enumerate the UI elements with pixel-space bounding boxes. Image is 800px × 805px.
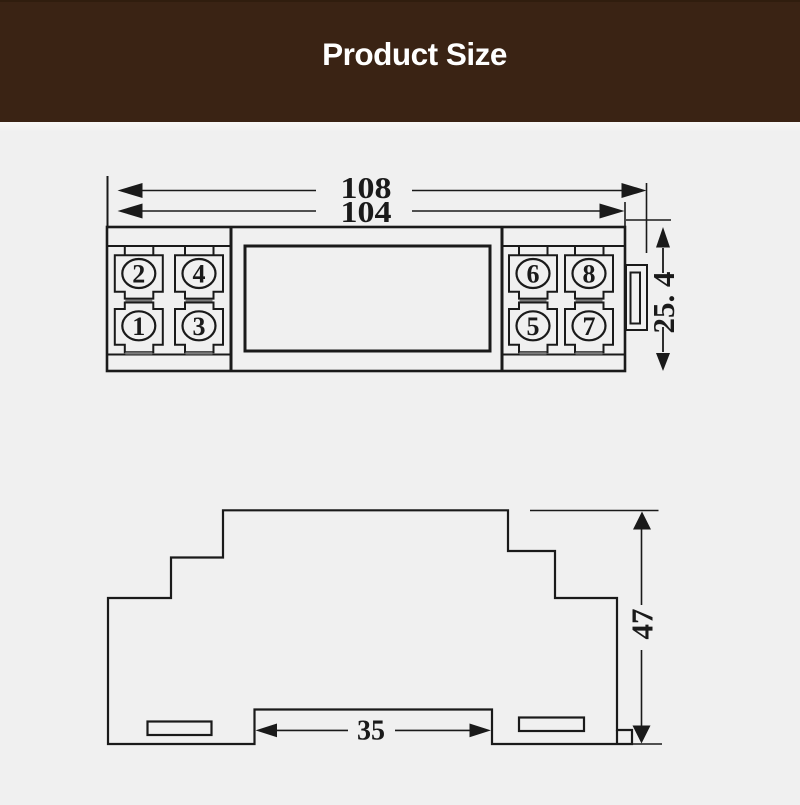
svg-text:1: 1 <box>132 312 145 341</box>
svg-text:4: 4 <box>193 260 206 289</box>
svg-text:47: 47 <box>625 609 660 640</box>
svg-text:7: 7 <box>583 312 596 341</box>
svg-text:2: 2 <box>132 260 145 289</box>
svg-text:3: 3 <box>193 312 206 341</box>
svg-text:25. 4: 25. 4 <box>646 272 681 334</box>
svg-text:104: 104 <box>341 194 392 229</box>
svg-text:35: 35 <box>357 716 385 747</box>
svg-text:6: 6 <box>527 260 540 289</box>
svg-text:8: 8 <box>583 260 596 289</box>
svg-text:5: 5 <box>527 312 540 341</box>
